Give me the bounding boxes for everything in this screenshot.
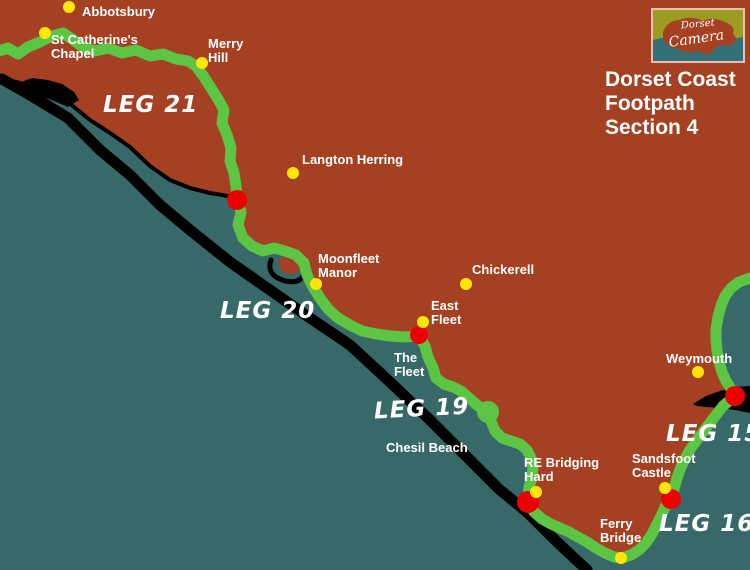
waypoint-dot-2 [410,326,428,344]
logo-graphic: Dorset Camera [653,10,743,61]
dot-abbotsbury [63,1,75,13]
dot-st-catherines-chapel [39,27,51,39]
dot-chickerell [460,278,472,290]
dot-merry-hill [196,57,208,69]
waypoint-dot-1 [227,190,247,210]
dorset-camera-logo: Dorset Camera [651,8,745,63]
waypoint-dot-5 [725,386,745,406]
dorset-coast-footpath-map: Abbotsbury St Catherine'sChapel MerryHil… [0,0,750,570]
dot-east-fleet [417,316,429,328]
dot-langton-herring [287,167,299,179]
dot-sandsfoot-castle [659,482,671,494]
dot-re-bridging-hard [530,486,542,498]
dot-weymouth [692,366,704,378]
dot-ferry-bridge [615,552,627,564]
dot-moonfleet-manor [310,278,322,290]
map-canvas [0,0,750,570]
route-loop-marker [477,401,499,423]
